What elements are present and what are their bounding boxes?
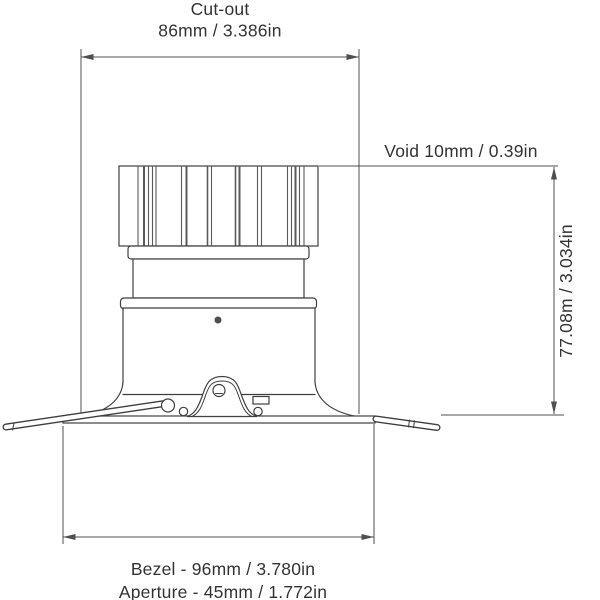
clip-bell-outer [187,377,257,417]
cutout-value: 86mm / 3.386in [158,21,281,41]
clip-foot-curl-left [179,407,187,415]
flange-ring [121,298,317,309]
clip-foot-curl-right [254,407,262,415]
heatsink-collar [128,246,309,259]
neck-section [133,259,304,298]
body-screw-dot [215,317,222,324]
spring-arm-right [376,419,437,428]
downlight-fixture [6,166,437,430]
spring-clip-bracket [179,377,269,417]
cutout-label: Cut-out [191,0,250,19]
aperture-label: Aperture - 45mm / 1.772in [119,582,327,600]
bezel-label: Bezel - 96mm / 3.780in [131,559,315,579]
height-label: 77.08m / 3.034in [556,224,576,358]
spring-arm-left [6,399,175,430]
void-label: Void 10mm / 0.39in [384,141,537,161]
right-flare [315,382,354,416]
clip-screw [213,385,225,397]
dimension-drawing-canvas: Cut-out 86mm / 3.386in Void 10mm / 0.39i… [0,0,600,600]
clip-tab [253,397,269,405]
downlight-dimension-drawing: Cut-out 86mm / 3.386in Void 10mm / 0.39i… [0,0,600,600]
spring-curl-left [162,399,175,412]
